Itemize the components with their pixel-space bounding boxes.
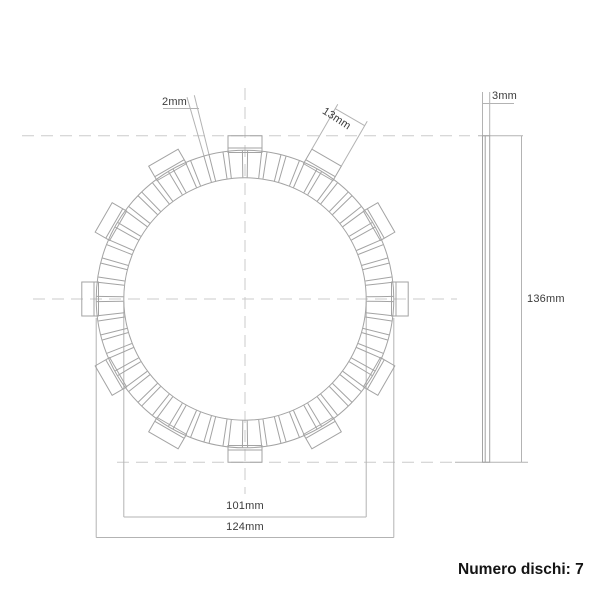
- dimension-label-groove-width: 2mm: [162, 97, 187, 108]
- centerlines: [22, 88, 470, 494]
- dimension-label-overall-diameter: 136mm: [527, 294, 565, 305]
- disc-side-view: [483, 136, 490, 462]
- dimension-label-outer-diameter: 124mm: [222, 522, 268, 533]
- disc-count-note: Numero dischi: 7: [458, 561, 584, 578]
- product-technical-drawing: 2mm 13mm 3mm 136mm 101mm 124mm Numero di…: [0, 0, 600, 600]
- dimension-label-thickness: 3mm: [492, 91, 517, 102]
- dimension-label-inner-diameter: 101mm: [222, 501, 268, 512]
